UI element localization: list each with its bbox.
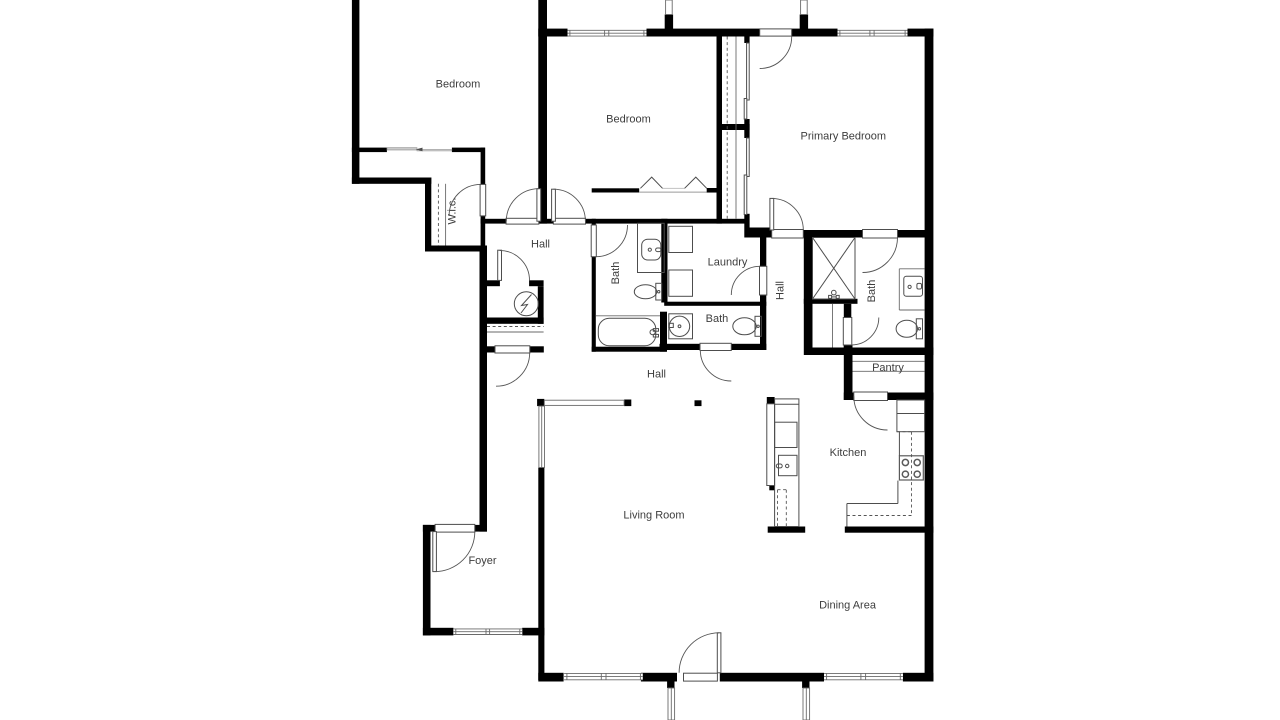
svg-text:Hall: Hall xyxy=(774,281,786,300)
svg-text:Laundry: Laundry xyxy=(708,256,748,268)
svg-text:Bath: Bath xyxy=(706,313,729,325)
svg-text:Bedroom: Bedroom xyxy=(436,78,481,90)
svg-text:Bedroom: Bedroom xyxy=(606,113,651,125)
svg-text:Dining Area: Dining Area xyxy=(819,599,877,611)
svg-text:Foyer: Foyer xyxy=(468,555,496,567)
svg-text:Pantry: Pantry xyxy=(872,362,904,374)
svg-text:Bath: Bath xyxy=(610,262,622,285)
svg-text:Hall: Hall xyxy=(531,238,550,250)
svg-text:Primary Bedroom: Primary Bedroom xyxy=(801,130,887,142)
svg-text:Hall: Hall xyxy=(647,368,666,380)
svg-text:Bath: Bath xyxy=(866,280,878,303)
svg-text:Living Room: Living Room xyxy=(623,509,684,521)
svg-text:W.i.c.: W.i.c. xyxy=(447,198,459,225)
svg-text:Kitchen: Kitchen xyxy=(830,447,867,459)
